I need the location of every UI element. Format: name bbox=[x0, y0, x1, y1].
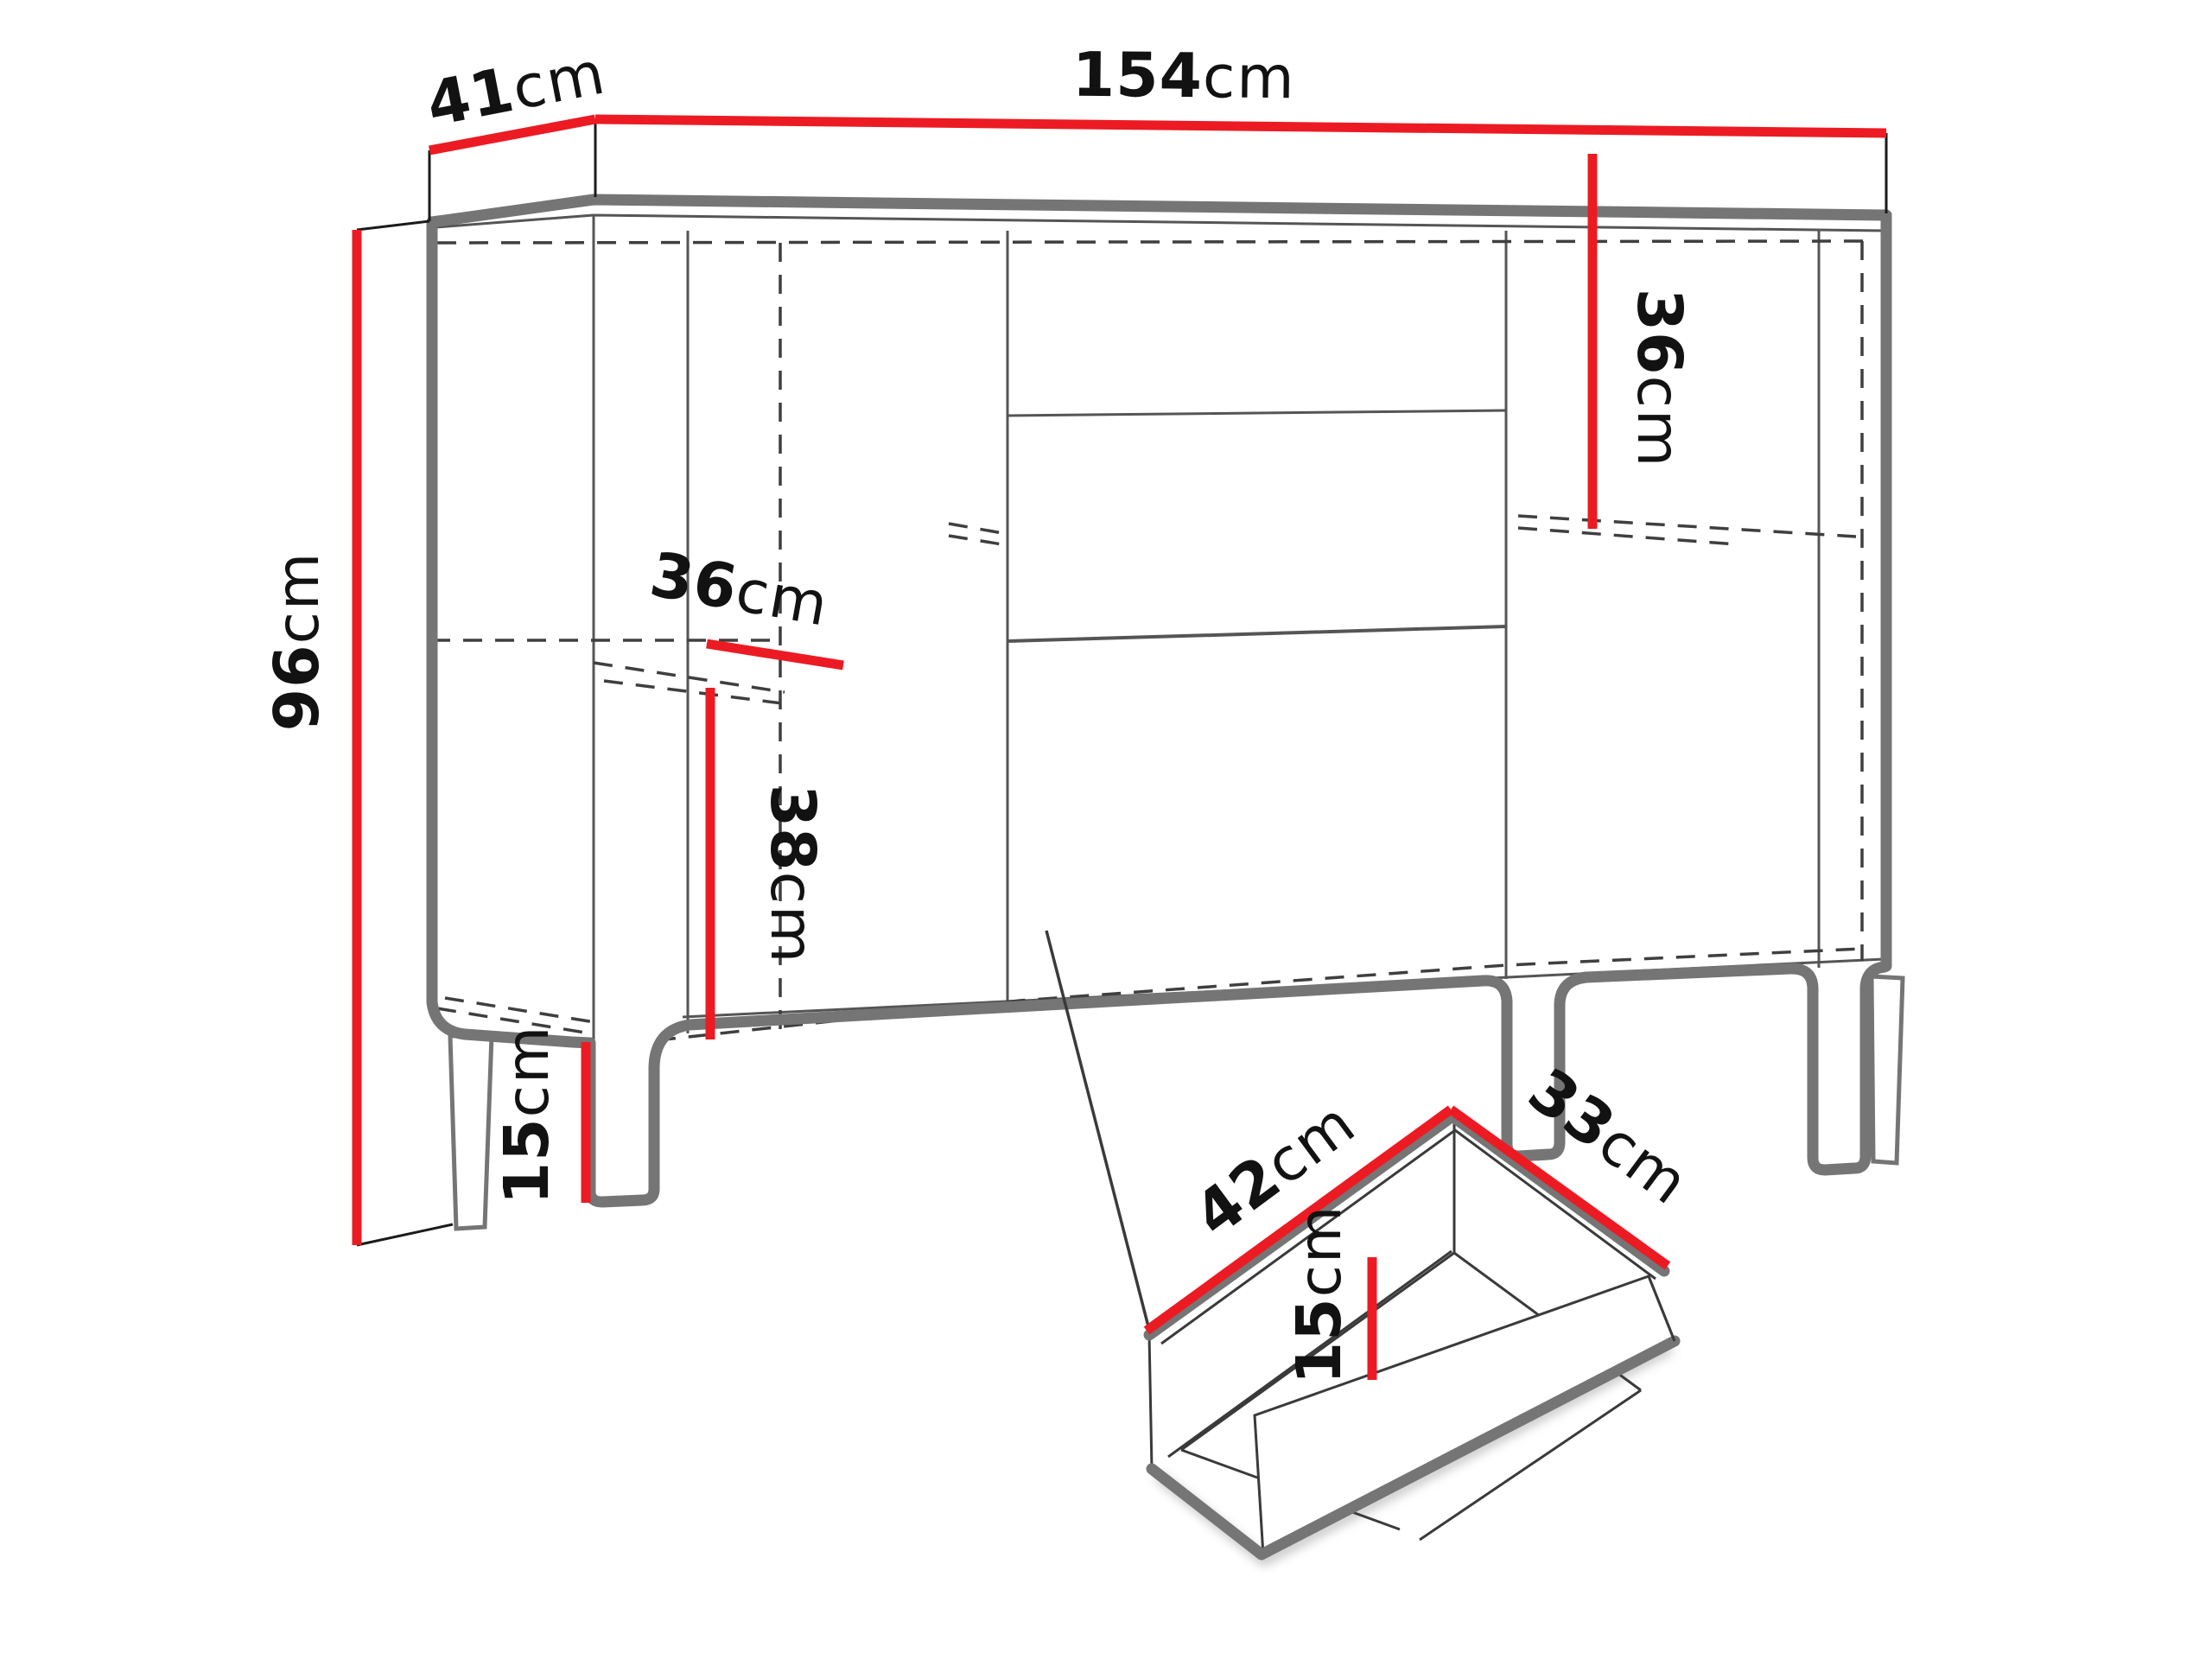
cabinet-dimension-diagram: 154cm 41cm 96cm 36cm 38cm 15cm 36cm 42cm… bbox=[0, 0, 2212, 1659]
height-connector-top bbox=[357, 221, 429, 230]
cabinet-top-edge bbox=[432, 200, 1886, 222]
drawer-front-line-bottom bbox=[1007, 626, 1506, 641]
label-right-inner-height-36cm: 36cm bbox=[1624, 289, 1695, 468]
label-drawer-depth-33cm: 33cm bbox=[1516, 1054, 1703, 1219]
cabinet-rear-left-leg bbox=[450, 1035, 492, 1229]
label-inner-height-38cm: 38cm bbox=[757, 785, 829, 964]
drawer-front-line-top bbox=[1007, 410, 1506, 416]
drawer-detail bbox=[1046, 931, 1675, 1560]
label-shelf-depth-36cm: 36cm bbox=[645, 538, 835, 640]
left-shelf-back-hidden-line-2 bbox=[949, 536, 1007, 545]
height-connector-bottom bbox=[357, 1224, 453, 1245]
dim-line-width-154 bbox=[595, 119, 1886, 133]
cabinet-rear-right-leg bbox=[1872, 976, 1903, 1163]
bottom-panel-hidden-line-left-2 bbox=[445, 998, 594, 1022]
label-height-96cm: 96cm bbox=[261, 551, 333, 731]
left-shelf-back-hidden-line-1 bbox=[949, 524, 1007, 534]
label-drawer-height-15cm: 15cm bbox=[1283, 1205, 1355, 1384]
drawer-left-outer-edge bbox=[1149, 1335, 1152, 1469]
cabinet-top-back-hidden-line bbox=[437, 241, 1863, 243]
label-width-154cm: 154cm bbox=[1071, 39, 1296, 113]
dim-line-shelf-depth-36 bbox=[707, 644, 843, 665]
left-shelf-thickness-hidden-line bbox=[604, 681, 789, 704]
right-shelf-thickness-hidden-line bbox=[1518, 528, 1737, 544]
label-leg-height-15cm: 15cm bbox=[491, 1025, 563, 1205]
diagram-stage: 154cm 41cm 96cm 36cm 38cm 15cm 36cm 42cm… bbox=[0, 0, 2212, 1659]
right-shelf-front-hidden-line bbox=[1518, 516, 1856, 537]
